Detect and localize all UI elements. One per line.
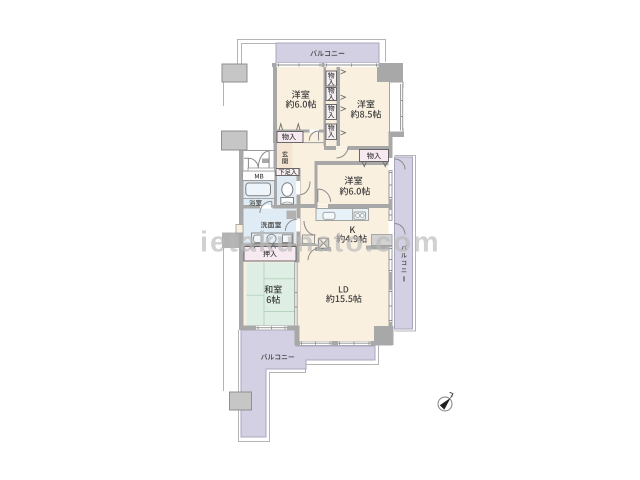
svg-text:ietakunato.com: ietakunato.com [200, 227, 441, 259]
